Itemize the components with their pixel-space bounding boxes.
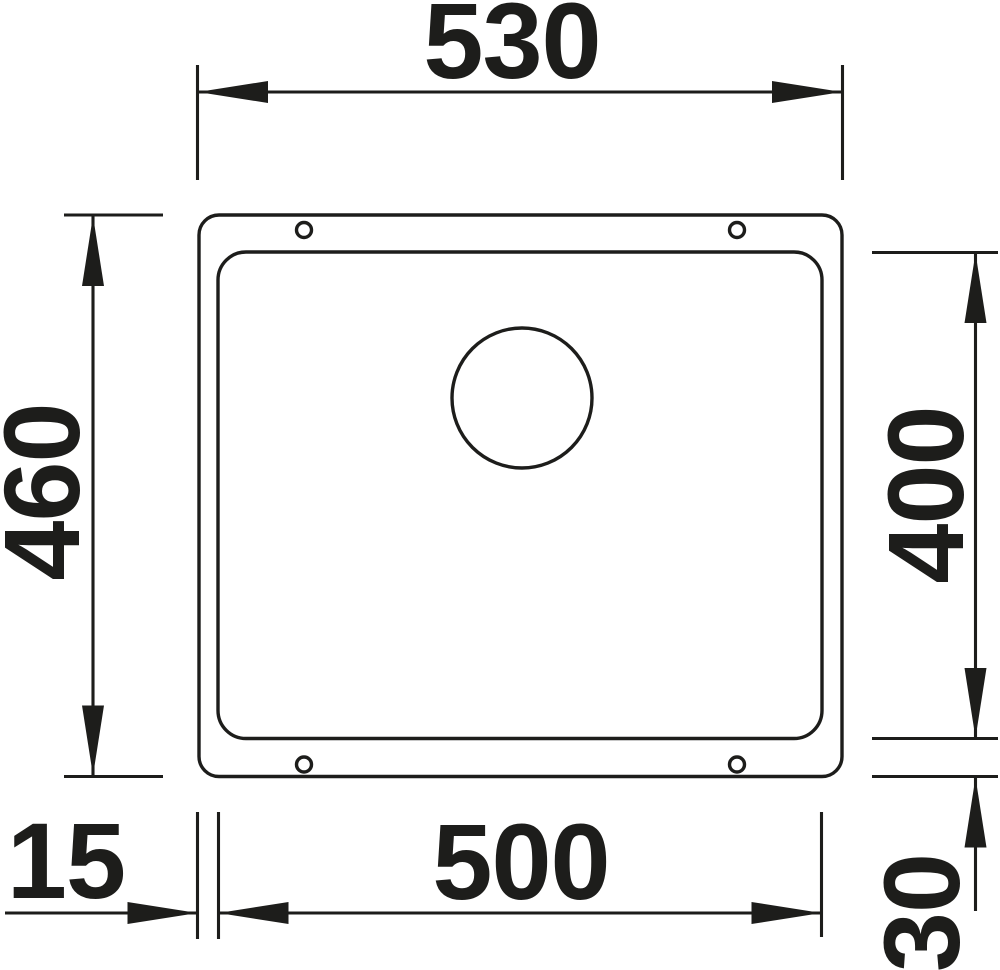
- arrowhead-left: [198, 81, 268, 103]
- dimension-label-bowl-height: 400: [865, 406, 986, 583]
- dimension-label-bowl-width: 500: [432, 801, 609, 922]
- sink-body: [199, 215, 842, 777]
- arrowhead-right: [772, 81, 842, 103]
- arrowhead-down: [965, 668, 987, 738]
- dimension-label-rim-offset-left: 15: [7, 800, 125, 921]
- dimension-label-outer-width: 530: [423, 0, 600, 101]
- dimension-rim-offset-bottom: 30: [861, 778, 987, 970]
- arrowhead-up: [82, 216, 104, 286]
- arrowhead-up: [965, 778, 987, 848]
- mounting-hole-top-left: [297, 223, 312, 238]
- dimension-rim-offset-left: 15: [5, 800, 219, 939]
- technical-drawing-canvas: 530 460 400 30: [0, 0, 1000, 970]
- bowl-inner-outline: [218, 252, 822, 739]
- dimension-bowl-height: 400: [865, 253, 998, 777]
- arrowhead-right: [128, 902, 198, 924]
- mounting-hole-bottom-left: [297, 757, 312, 772]
- mounting-hole-bottom-right: [730, 757, 745, 772]
- arrowhead-right: [752, 902, 822, 924]
- arrowhead-left: [219, 902, 289, 924]
- sink-outer-rim-outline: [199, 215, 842, 777]
- arrowhead-up: [965, 253, 987, 323]
- dimension-label-rim-offset-bottom: 30: [861, 854, 982, 970]
- dimension-label-outer-height: 460: [0, 403, 102, 580]
- sink-dimension-diagram: 530 460 400 30: [0, 0, 1000, 970]
- drain-hole: [452, 328, 592, 468]
- dimension-outer-height: 460: [0, 215, 163, 777]
- arrowhead-down: [82, 706, 104, 776]
- dimension-bowl-width: 500: [219, 801, 822, 937]
- mounting-hole-top-right: [730, 223, 745, 238]
- dimension-outer-width: 530: [198, 0, 843, 180]
